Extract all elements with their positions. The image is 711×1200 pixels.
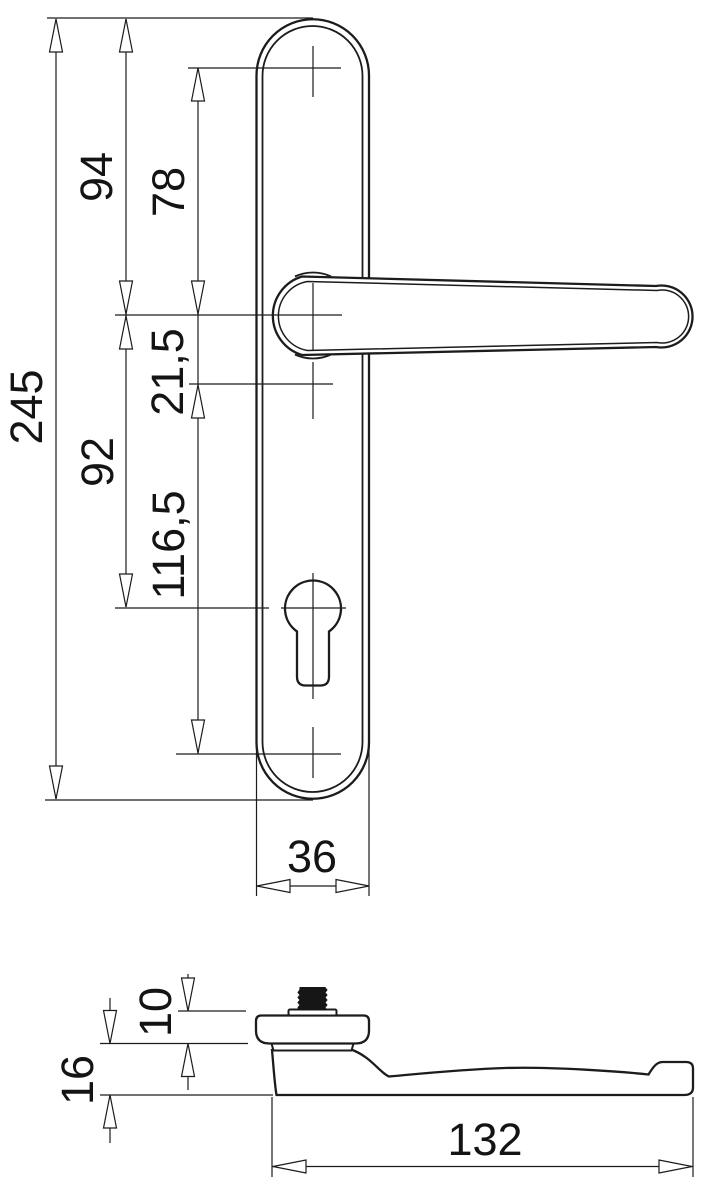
lever-profile [272, 1050, 693, 1095]
arrowhead-right [659, 1160, 692, 1173]
arrowhead-up [192, 68, 205, 101]
dim-21_5-label: 21,5 [142, 328, 193, 416]
dim-16-label: 16 [52, 1055, 103, 1105]
arrowhead-up [192, 385, 205, 418]
arrowhead-down [192, 720, 205, 753]
arrowhead-left [257, 880, 290, 893]
spindle-thread [298, 988, 327, 1011]
top-screw-center-cross [188, 46, 341, 97]
arrowhead-down [50, 766, 63, 799]
dim-36-label: 36 [287, 831, 337, 882]
side-view: 10 16 132 [52, 974, 693, 1177]
dim-36: 36 [257, 831, 370, 893]
dim-245: 245 [1, 19, 63, 799]
dim-94-label: 94 [71, 152, 122, 202]
arrowhead-up [120, 316, 133, 349]
technical-drawing-page: 245 94 92 78 21,5 116,5 3 [0, 0, 711, 1200]
arrowhead-down [182, 978, 195, 1011]
arrowhead-up [104, 1095, 117, 1128]
arrowhead-up [120, 19, 133, 52]
arrowhead-down [104, 1011, 117, 1044]
dim-78-label: 78 [143, 167, 194, 217]
dim-16: 16 [52, 998, 117, 1143]
dim-92-label: 92 [72, 437, 123, 487]
arrowhead-left [273, 1160, 306, 1173]
dim-94-92: 94 92 [71, 19, 133, 607]
dim-10-label: 10 [130, 987, 181, 1037]
arrowhead-down [120, 281, 133, 314]
dim-245-label: 245 [1, 369, 52, 444]
arrowhead-right [336, 880, 369, 893]
dim-132-label: 132 [447, 1114, 522, 1165]
arrowhead-up [50, 19, 63, 52]
technical-drawing-canvas: 245 94 92 78 21,5 116,5 3 [0, 0, 711, 1200]
arrowhead-up [182, 1044, 195, 1077]
spindle-center-cross [189, 362, 333, 419]
dim-10: 10 [130, 974, 195, 1090]
dim-132: 132 [272, 1114, 693, 1173]
dim-116_5-label: 116,5 [143, 490, 194, 599]
dim-78-21_5-116_5: 78 21,5 116,5 [142, 68, 205, 754]
arrowhead-down [120, 574, 133, 607]
rose-profile [256, 1016, 369, 1044]
arrowhead-down [192, 281, 205, 314]
front-view: 245 94 92 78 21,5 116,5 3 [1, 18, 693, 896]
